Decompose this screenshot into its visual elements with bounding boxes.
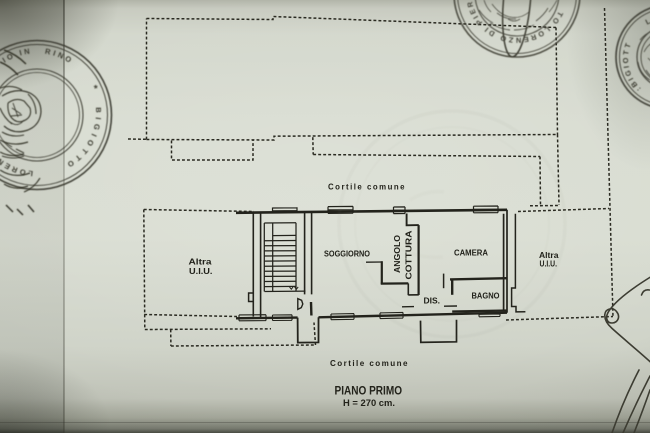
svg-text:RINO: RINO [44,47,75,66]
svg-text:ANGOLO: ANGOLO [392,235,402,273]
svg-text:BAGNO: BAGNO [472,292,501,301]
svg-text:DIS.: DIS. [424,297,441,306]
svg-text:TO LORENZO DI PIER: TO LORENZO DI PIER [465,0,565,45]
svg-text:H = 270 cm.: H = 270 cm. [343,398,395,409]
svg-text:*: * [88,84,100,92]
svg-text:Altra: Altra [189,258,213,267]
svg-text:U.I.U.: U.I.U. [189,267,213,276]
svg-text:Cortile comune: Cortile comune [330,358,409,368]
svg-text:Cortile comune: Cortile comune [328,182,406,192]
svg-text:SOGGIORNO: SOGGIORNO [324,249,370,259]
svg-text:PIANO PRIMO: PIANO PRIMO [335,384,403,398]
svg-text:CAMERA: CAMERA [454,248,488,258]
